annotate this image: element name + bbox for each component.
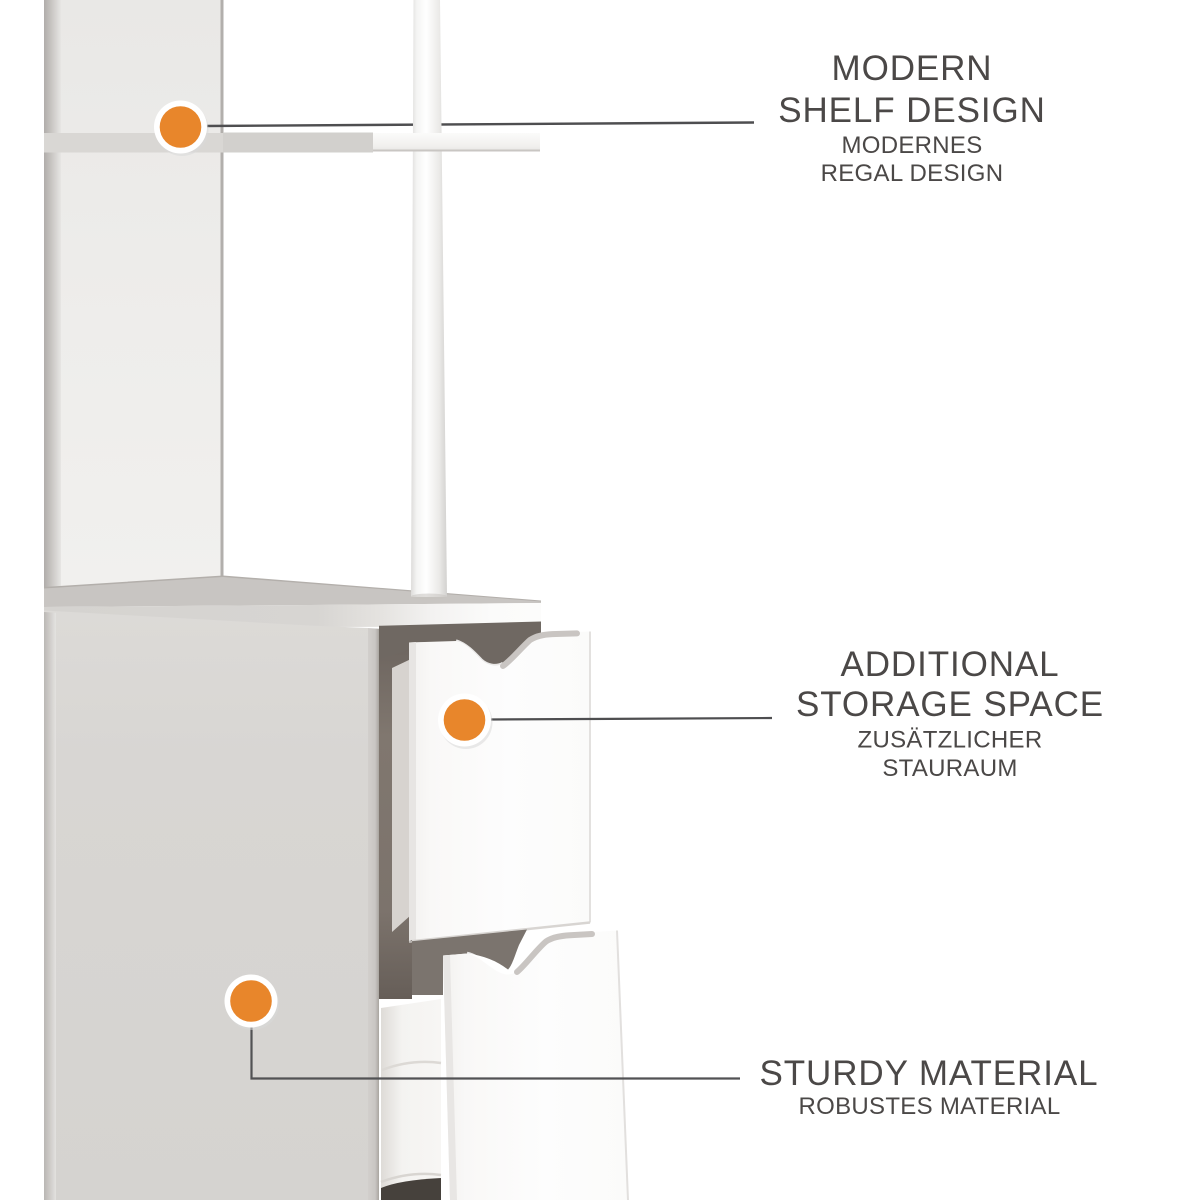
- svg-text:REGAL DESIGN: REGAL DESIGN: [821, 160, 1004, 187]
- svg-text:STAURAUM: STAURAUM: [882, 755, 1017, 782]
- svg-text:MODERN: MODERN: [832, 49, 993, 88]
- svg-text:STORAGE SPACE: STORAGE SPACE: [796, 685, 1104, 724]
- svg-text:ADDITIONAL: ADDITIONAL: [840, 645, 1059, 684]
- svg-text:ZUSÄTZLICHER: ZUSÄTZLICHER: [858, 727, 1043, 754]
- svg-text:STURDY MATERIAL: STURDY MATERIAL: [760, 1054, 1099, 1093]
- svg-text:MODERNES: MODERNES: [841, 132, 982, 159]
- svg-text:SHELF DESIGN: SHELF DESIGN: [778, 91, 1046, 130]
- svg-text:ROBUSTES MATERIAL: ROBUSTES MATERIAL: [798, 1093, 1060, 1120]
